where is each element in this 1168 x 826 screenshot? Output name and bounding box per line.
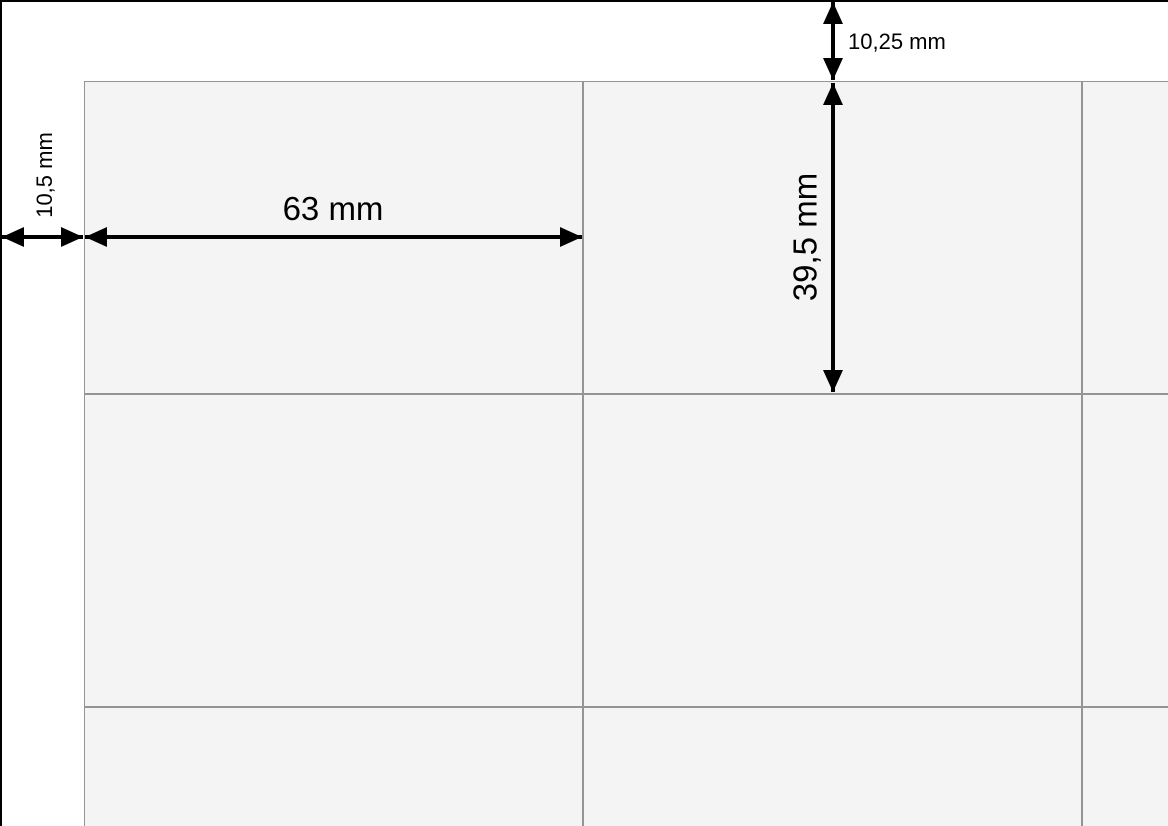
- label-width-arrow: [85, 227, 582, 247]
- label-cell: [84, 394, 583, 707]
- page-left-edge: [0, 0, 2, 826]
- page-top-edge: [0, 0, 1168, 2]
- arrowhead-up-icon: [823, 2, 843, 24]
- top-margin-label: 10,25 mm: [848, 31, 946, 53]
- label-sheet-diagram: 10,25 mm 10,5 mm 63 mm 39,5 mm: [0, 0, 1168, 826]
- arrowhead-down-icon: [823, 370, 843, 392]
- label-height-arrow: [823, 83, 843, 392]
- label-cell: [583, 394, 1082, 707]
- label-width-label: 63 mm: [283, 192, 384, 225]
- left-margin-arrow: [2, 227, 83, 247]
- label-cell: [84, 707, 583, 826]
- arrowhead-right-icon: [560, 227, 582, 247]
- arrowhead-down-icon: [823, 58, 843, 80]
- arrow-shaft: [831, 83, 835, 392]
- left-margin-label: 10,5 mm: [34, 132, 56, 218]
- arrowhead-left-icon: [2, 227, 24, 247]
- label-cell: [1082, 394, 1168, 707]
- arrowhead-right-icon: [61, 227, 83, 247]
- arrowhead-left-icon: [85, 227, 107, 247]
- label-cell: [1082, 707, 1168, 826]
- top-margin-arrow: [823, 2, 843, 80]
- label-cell: [1082, 81, 1168, 394]
- label-cell: [583, 707, 1082, 826]
- arrowhead-up-icon: [823, 83, 843, 105]
- label-height-label: 39,5 mm: [789, 173, 822, 301]
- arrow-shaft: [85, 235, 582, 239]
